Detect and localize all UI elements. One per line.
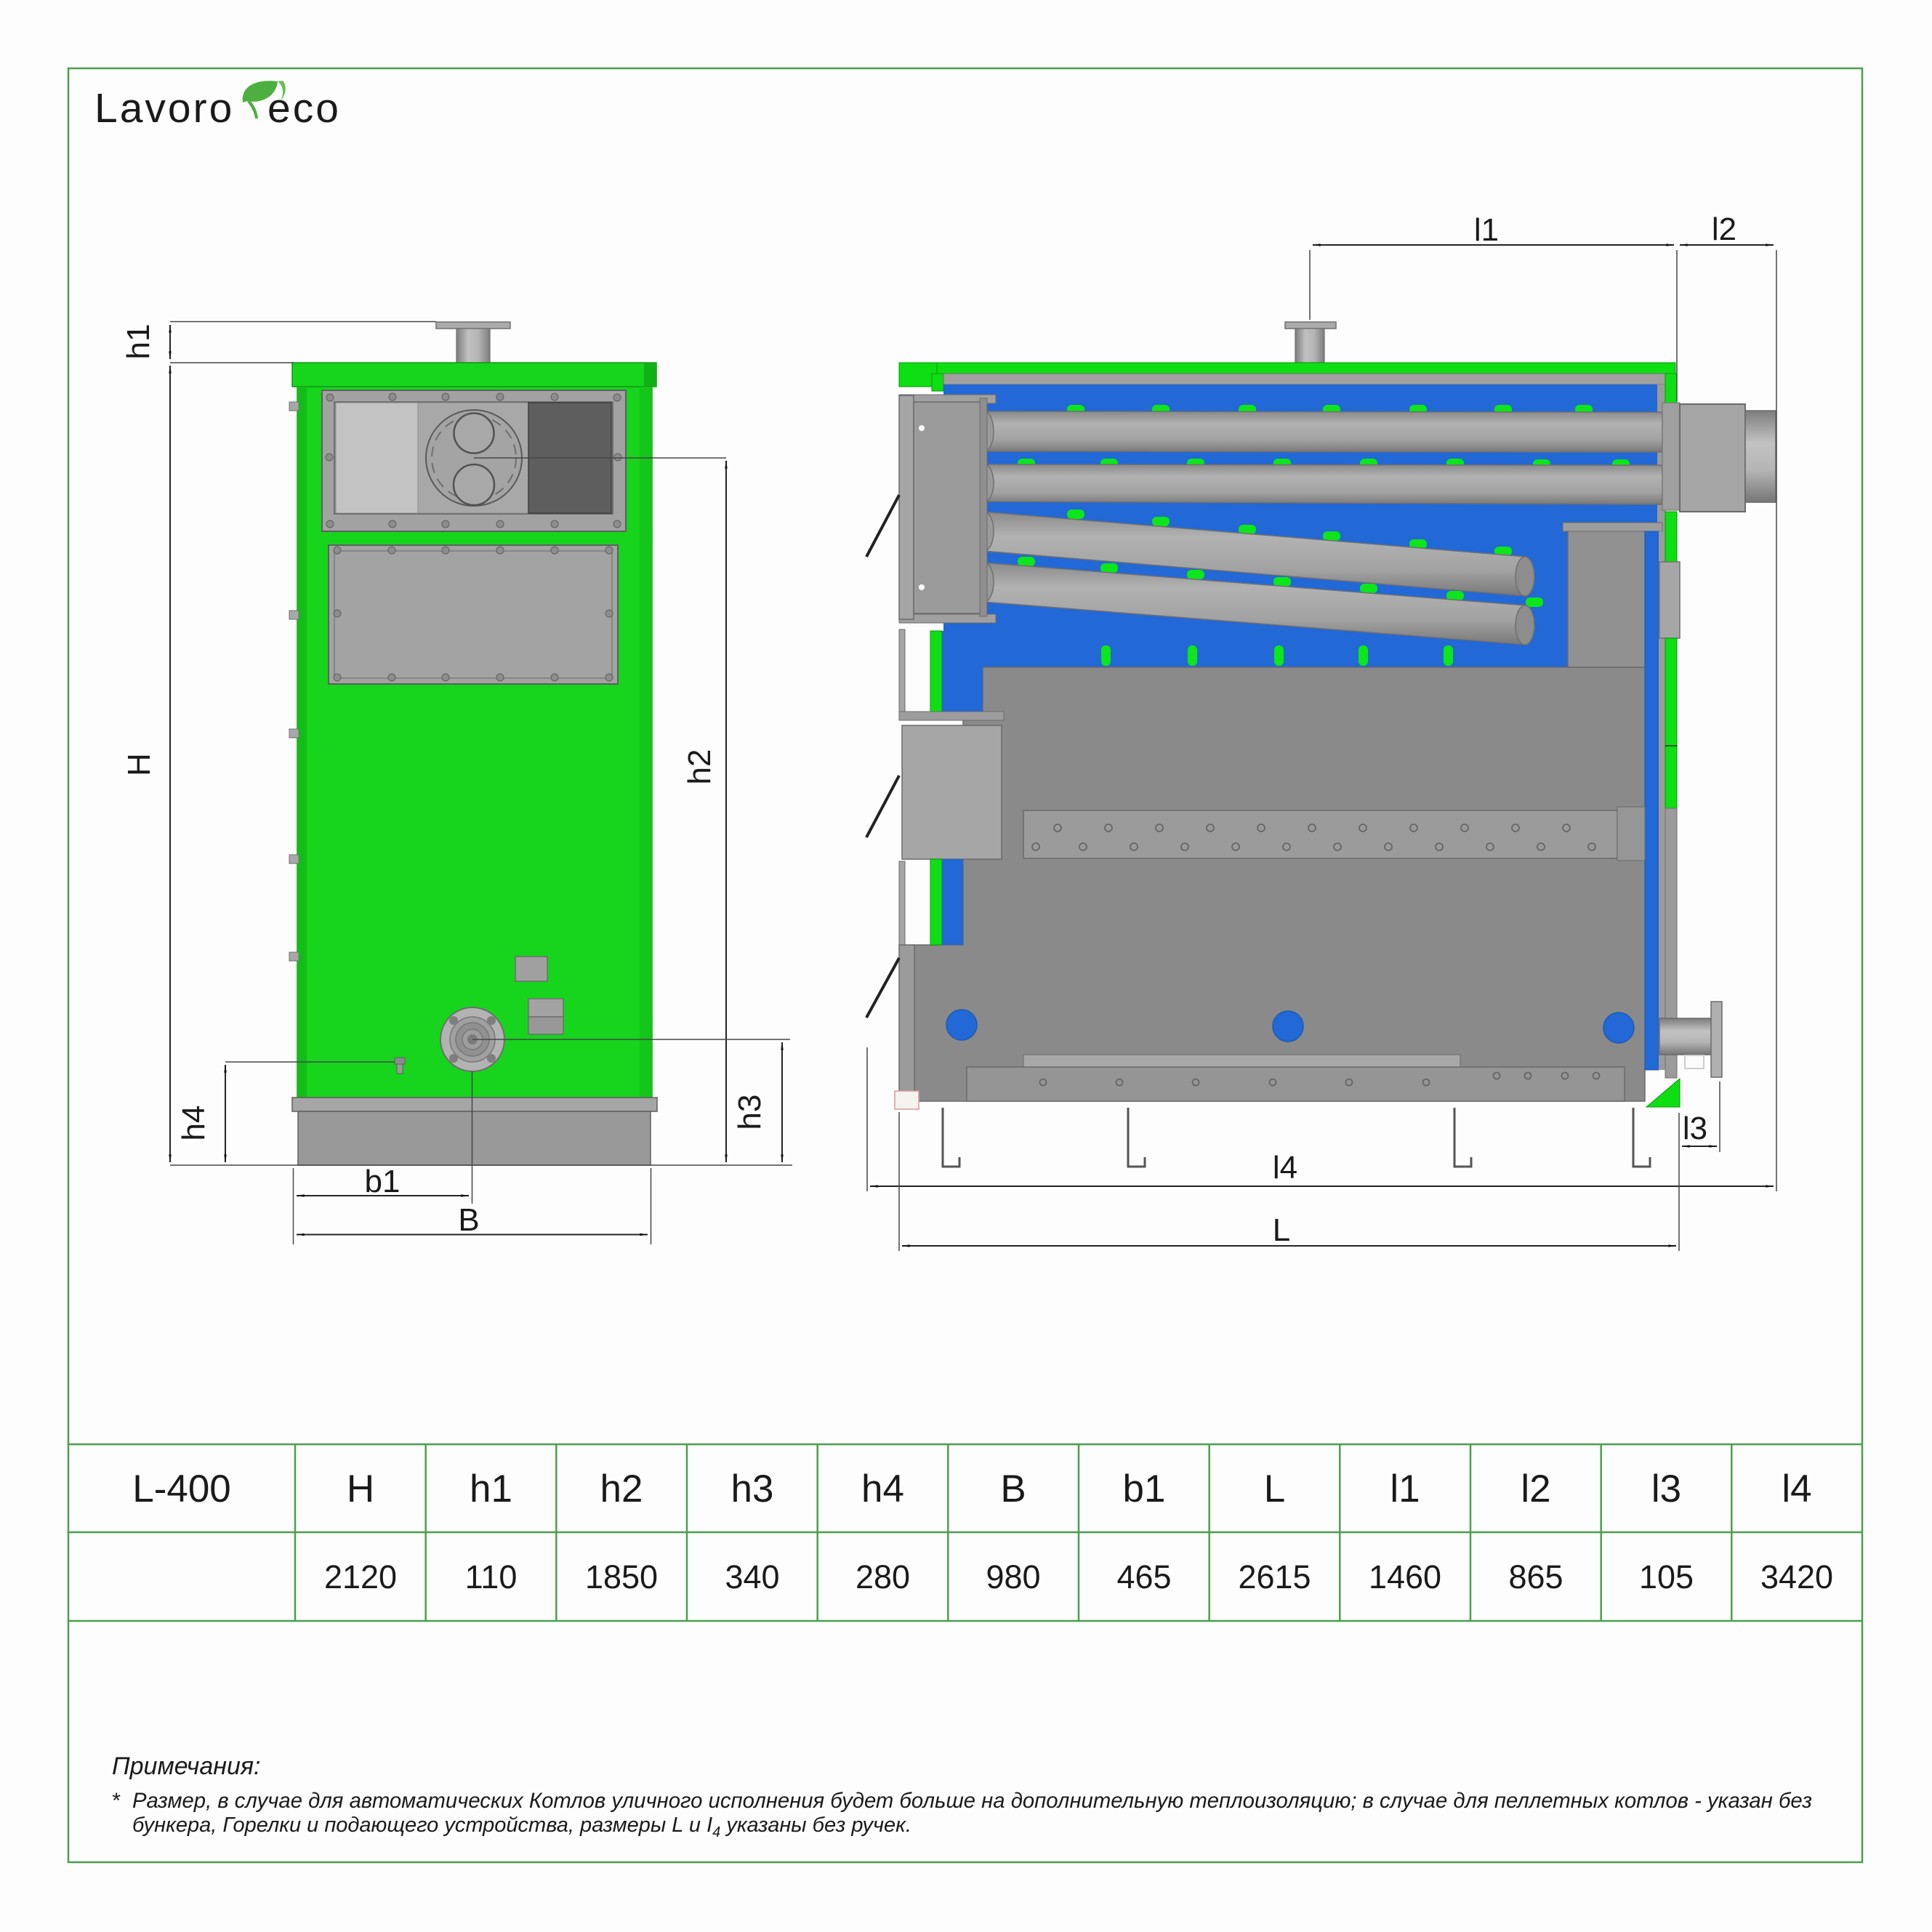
svg-text:l1: l1	[1474, 212, 1499, 248]
svg-text:2615: 2615	[1238, 1558, 1311, 1595]
svg-text:b1: b1	[1123, 1468, 1166, 1510]
svg-text:l1: l1	[1390, 1468, 1420, 1510]
svg-text:eco: eco	[267, 85, 341, 132]
svg-text:h4: h4	[176, 1106, 212, 1141]
svg-text:бункера, Горелки и подающего у: бункера, Горелки и подающего устройства,…	[132, 1814, 911, 1840]
svg-text:h2: h2	[682, 749, 717, 785]
svg-text:1460: 1460	[1369, 1558, 1441, 1595]
svg-text:h2: h2	[600, 1468, 643, 1510]
svg-text:h4: h4	[861, 1468, 904, 1510]
svg-text:h3: h3	[732, 1095, 768, 1130]
svg-text:l2: l2	[1521, 1468, 1550, 1510]
svg-text:h1: h1	[470, 1468, 512, 1510]
svg-text:l4: l4	[1273, 1150, 1297, 1186]
svg-text:b1: b1	[365, 1164, 401, 1199]
svg-text:Lavoro: Lavoro	[94, 85, 234, 132]
svg-text:980: 980	[986, 1558, 1040, 1595]
svg-text:*: *	[111, 1789, 121, 1813]
svg-text:H: H	[347, 1468, 374, 1510]
svg-text:Размер, в случае для автоматич: Размер, в случае для автоматических Котл…	[132, 1789, 1812, 1813]
svg-text:3420: 3420	[1760, 1558, 1833, 1595]
svg-text:l3: l3	[1651, 1468, 1681, 1510]
svg-text:L-400: L-400	[132, 1468, 231, 1510]
svg-text:B: B	[458, 1202, 479, 1238]
svg-text:Примечания:: Примечания:	[112, 1752, 261, 1780]
svg-text:105: 105	[1639, 1558, 1694, 1595]
svg-text:340: 340	[725, 1558, 779, 1595]
svg-text:h1: h1	[121, 324, 156, 360]
svg-text:2120: 2120	[324, 1558, 397, 1595]
svg-text:110: 110	[465, 1558, 518, 1595]
svg-text:l3: l3	[1683, 1111, 1707, 1146]
svg-text:l4: l4	[1782, 1468, 1811, 1510]
svg-text:465: 465	[1116, 1558, 1171, 1595]
svg-text:865: 865	[1508, 1558, 1563, 1595]
svg-text:L: L	[1264, 1468, 1285, 1510]
svg-text:1850: 1850	[585, 1558, 658, 1595]
svg-text:l2: l2	[1712, 212, 1736, 247]
svg-text:L: L	[1273, 1212, 1290, 1248]
svg-text:B: B	[1000, 1468, 1026, 1510]
svg-text:280: 280	[856, 1558, 910, 1595]
svg-text:h3: h3	[731, 1468, 774, 1510]
svg-text:H: H	[121, 753, 157, 776]
